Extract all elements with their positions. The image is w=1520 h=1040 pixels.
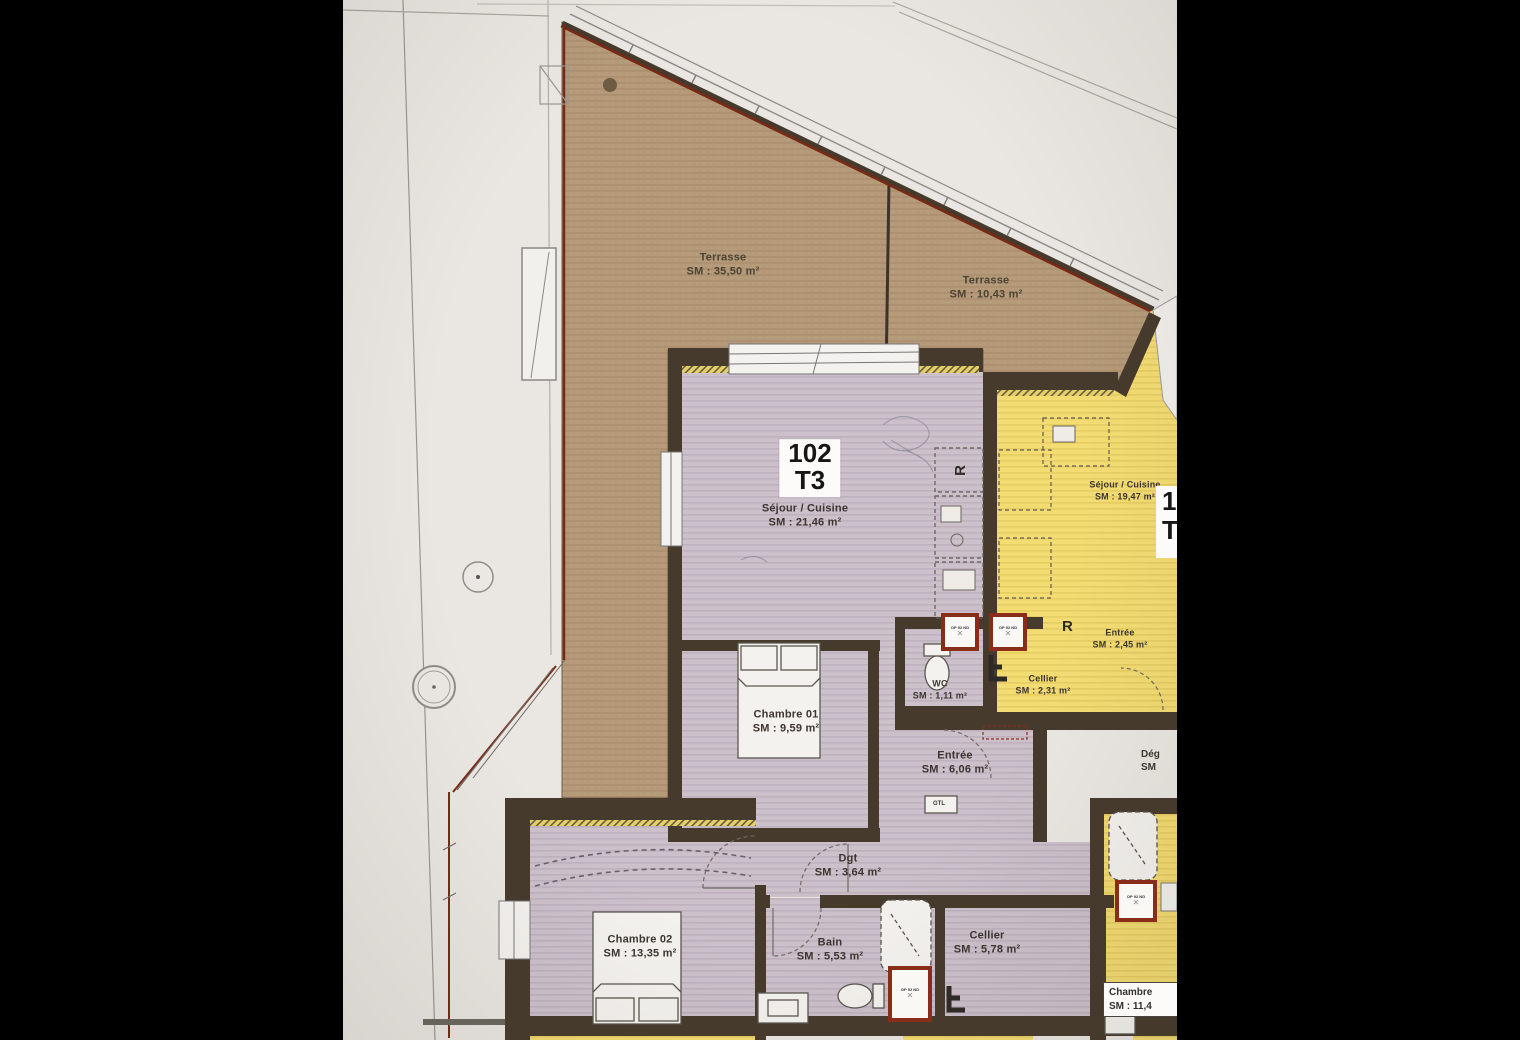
label-sejour-cuisine: Séjour / CuisineSM : 21,46 m² xyxy=(762,502,848,531)
fridge-symbol-1: R xyxy=(952,465,969,476)
window-right-apartment xyxy=(1161,883,1177,911)
gtl-label: GTL xyxy=(933,801,945,807)
label-neighbor-entree: EntréeSM : 2,45 m² xyxy=(1093,627,1148,650)
label-degagement: DégSM xyxy=(1141,748,1160,774)
label-neighbor-cellier: CellierSM : 2,31 m² xyxy=(1016,673,1071,696)
label-dgt: DgtSM : 3,64 m² xyxy=(815,852,882,881)
door-tag-3: OP 92 ND✕ xyxy=(888,966,932,1022)
floorplan-photo: TerrasseSM : 35,50 m² TerrasseSM : 10,43… xyxy=(343,0,1177,1040)
label-terrasse-2: TerrasseSM : 10,43 m² xyxy=(950,274,1023,303)
door-tag-2: OP 92 ND✕ xyxy=(989,613,1027,651)
screenshot-stage: TerrasseSM : 35,50 m² TerrasseSM : 10,43… xyxy=(0,0,1520,1040)
sliding-window-sejour xyxy=(729,344,919,374)
bed-chambre01 xyxy=(738,643,820,758)
door-tag-4: OP 92 ND✕ xyxy=(1115,880,1157,922)
door-tag-1: OP 92 ND✕ xyxy=(941,613,979,651)
apartment-number-box: 102T3 xyxy=(779,439,840,497)
shower-bain xyxy=(881,900,931,972)
toilet-bain xyxy=(838,984,884,1008)
label-chambre-02: Chambre 02SM : 13,35 m² xyxy=(604,933,677,962)
label-chambre-01: Chambre 01SM : 9,59 m² xyxy=(753,708,820,737)
shower-right-apartment xyxy=(1109,812,1157,880)
label-bain: BainSM : 5,53 m² xyxy=(797,936,864,965)
neighbor-number-box: 10T xyxy=(1156,486,1177,558)
bed-chambre02 xyxy=(593,912,681,1024)
site-objects xyxy=(413,66,568,708)
label-right-chambre: ChambreSM : 11,4 xyxy=(1103,982,1177,1017)
label-neighbor-sejour: Séjour / CuisineSM : 19,47 m² xyxy=(1089,479,1160,502)
floorplan-svg xyxy=(343,0,1177,1040)
label-cellier: CellierSM : 5,78 m² xyxy=(954,929,1021,958)
label-wc: WCSM : 1,11 m² xyxy=(913,678,967,701)
fridge-symbol-2: R xyxy=(1062,618,1073,635)
label-terrasse-1: TerrasseSM : 35,50 m² xyxy=(687,251,760,280)
label-entree: EntréeSM : 6,06 m² xyxy=(922,749,989,778)
washbasin-bain xyxy=(758,993,808,1023)
